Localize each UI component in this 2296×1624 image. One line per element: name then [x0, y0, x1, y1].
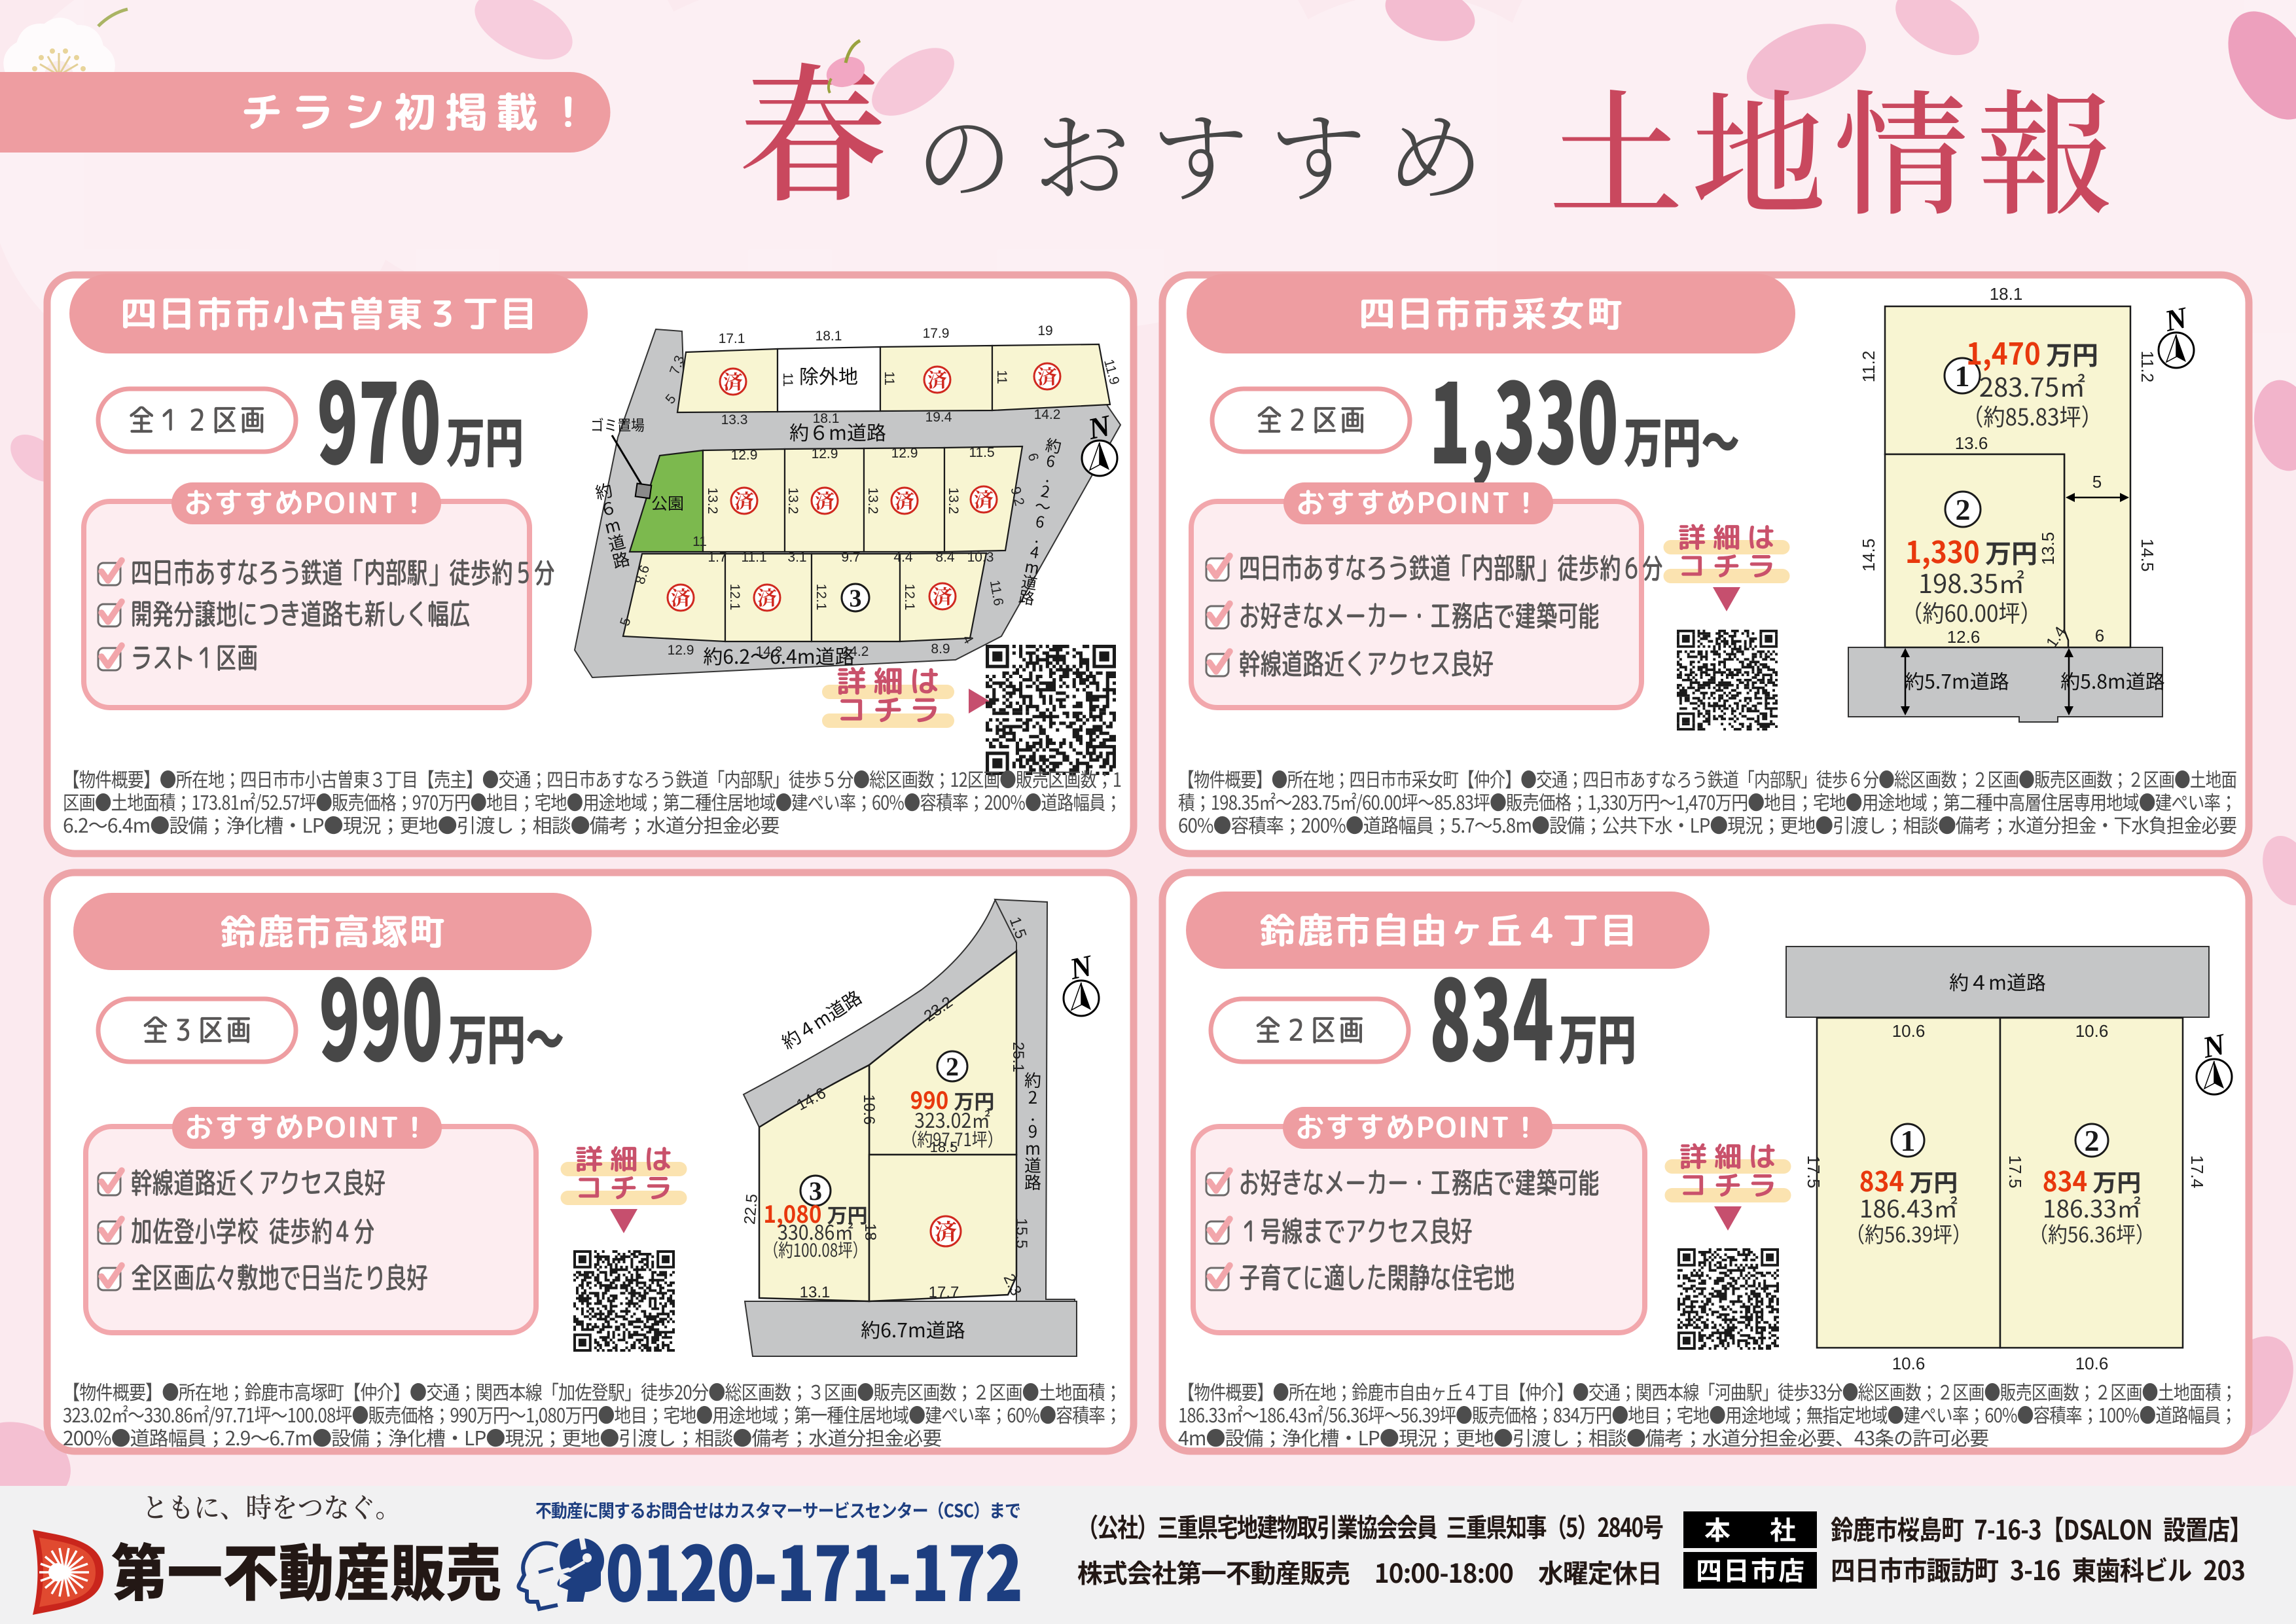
svg-text:11: 11 — [994, 370, 1009, 384]
svg-text:22.5: 22.5 — [741, 1193, 761, 1225]
svg-text:2: 2 — [1956, 493, 1971, 526]
svg-text:11: 11 — [780, 372, 795, 387]
svg-text:5: 5 — [2092, 472, 2102, 492]
svg-text:6: 6 — [2095, 626, 2104, 645]
svg-text:13.2: 13.2 — [705, 488, 720, 514]
svg-text:17.5: 17.5 — [2005, 1155, 2025, 1189]
svg-text:10.6: 10.6 — [1892, 1354, 1926, 1373]
svg-text:14.2: 14.2 — [842, 644, 869, 659]
svg-text:17.4: 17.4 — [2187, 1155, 2207, 1189]
svg-text:3.1: 3.1 — [787, 550, 806, 565]
svg-text:14.5: 14.5 — [1859, 539, 1878, 572]
svg-text:8.4: 8.4 — [935, 550, 955, 565]
svg-text:13.2: 13.2 — [865, 488, 880, 514]
svg-text:18.1: 18.1 — [813, 411, 840, 426]
svg-text:8.9: 8.9 — [931, 641, 950, 657]
svg-text:17.7: 17.7 — [929, 1284, 960, 1301]
svg-text:14.2: 14.2 — [756, 644, 783, 659]
svg-text:3: 3 — [809, 1176, 822, 1206]
svg-text:14.5: 14.5 — [2138, 539, 2157, 572]
svg-text:19.4: 19.4 — [925, 410, 952, 425]
svg-text:10.6: 10.6 — [2075, 1354, 2109, 1373]
svg-text:12.9: 12.9 — [812, 446, 838, 461]
svg-text:19: 19 — [1037, 323, 1052, 338]
svg-text:2: 2 — [2085, 1124, 2100, 1157]
svg-text:10.6: 10.6 — [2075, 1021, 2109, 1041]
svg-text:18: 18 — [861, 1223, 879, 1241]
svg-text:13.5: 13.5 — [2038, 532, 2058, 566]
svg-text:12.9: 12.9 — [668, 643, 694, 658]
svg-text:17.5: 17.5 — [1804, 1155, 1823, 1189]
svg-text:18.1: 18.1 — [816, 329, 842, 344]
svg-text:4.4: 4.4 — [893, 550, 913, 565]
svg-text:11.2: 11.2 — [1859, 351, 1878, 383]
svg-text:1: 1 — [1901, 1124, 1916, 1157]
svg-text:12.6: 12.6 — [1947, 627, 1981, 647]
svg-text:18.5: 18.5 — [930, 1139, 958, 1155]
svg-text:13.3: 13.3 — [721, 412, 748, 427]
svg-text:13.1: 13.1 — [800, 1284, 831, 1301]
svg-text:10.6: 10.6 — [1892, 1021, 1926, 1041]
svg-text:10.3: 10.3 — [967, 550, 994, 565]
svg-text:17.1: 17.1 — [719, 331, 745, 346]
svg-text:11.1: 11.1 — [741, 550, 766, 565]
svg-text:13.2: 13.2 — [946, 488, 961, 514]
svg-text:17.9: 17.9 — [923, 326, 950, 341]
svg-text:12.1: 12.1 — [902, 584, 917, 611]
svg-text:11: 11 — [692, 534, 707, 549]
svg-text:25.1: 25.1 — [1009, 1042, 1027, 1073]
svg-text:3: 3 — [850, 585, 862, 612]
svg-text:10.6: 10.6 — [860, 1094, 878, 1125]
svg-text:12.1: 12.1 — [727, 584, 742, 611]
svg-text:11: 11 — [882, 371, 897, 386]
svg-text:14.2: 14.2 — [1034, 407, 1061, 422]
svg-text:11.5: 11.5 — [969, 445, 994, 460]
svg-text:12.9: 12.9 — [891, 446, 918, 461]
svg-text:2: 2 — [946, 1052, 959, 1081]
svg-text:9.7: 9.7 — [841, 550, 860, 565]
svg-text:18.1: 18.1 — [1990, 284, 2023, 304]
svg-text:15.5: 15.5 — [1013, 1218, 1030, 1249]
svg-text:1.7: 1.7 — [708, 550, 726, 565]
svg-text:12.9: 12.9 — [731, 448, 758, 463]
svg-text:13.2: 13.2 — [785, 488, 800, 514]
svg-text:12.1: 12.1 — [814, 584, 829, 611]
svg-text:1: 1 — [1955, 359, 1970, 393]
svg-text:13.6: 13.6 — [1955, 433, 1988, 453]
svg-text:11.2: 11.2 — [2138, 351, 2157, 383]
